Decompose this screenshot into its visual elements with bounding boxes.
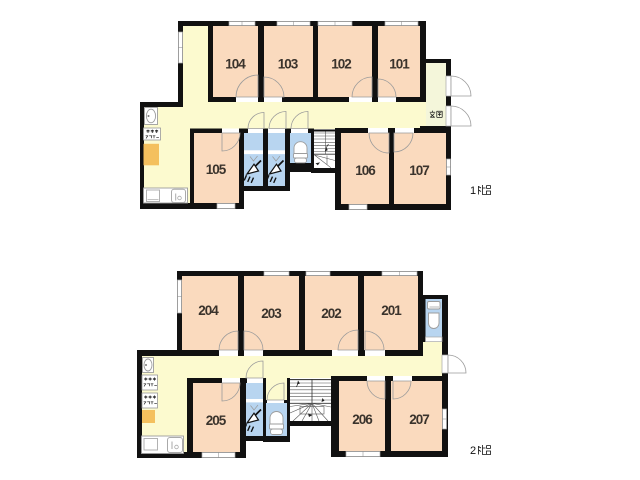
svg-text:205: 205 xyxy=(206,413,227,428)
svg-text:106: 106 xyxy=(355,163,376,178)
svg-text:207: 207 xyxy=(409,412,429,427)
svg-text:107: 107 xyxy=(409,163,429,178)
svg-text:102: 102 xyxy=(331,57,351,72)
svg-text:202: 202 xyxy=(321,306,341,321)
svg-text:101: 101 xyxy=(389,57,410,72)
svg-text:103: 103 xyxy=(278,57,299,72)
svg-text:203: 203 xyxy=(261,306,282,321)
svg-text:105: 105 xyxy=(206,162,227,177)
svg-text:104: 104 xyxy=(225,57,246,72)
svg-text:201: 201 xyxy=(381,303,402,318)
svg-text:1: 1 xyxy=(470,185,476,197)
svg-text:206: 206 xyxy=(352,412,373,427)
svg-text:2: 2 xyxy=(470,445,476,457)
svg-text:204: 204 xyxy=(198,303,219,318)
